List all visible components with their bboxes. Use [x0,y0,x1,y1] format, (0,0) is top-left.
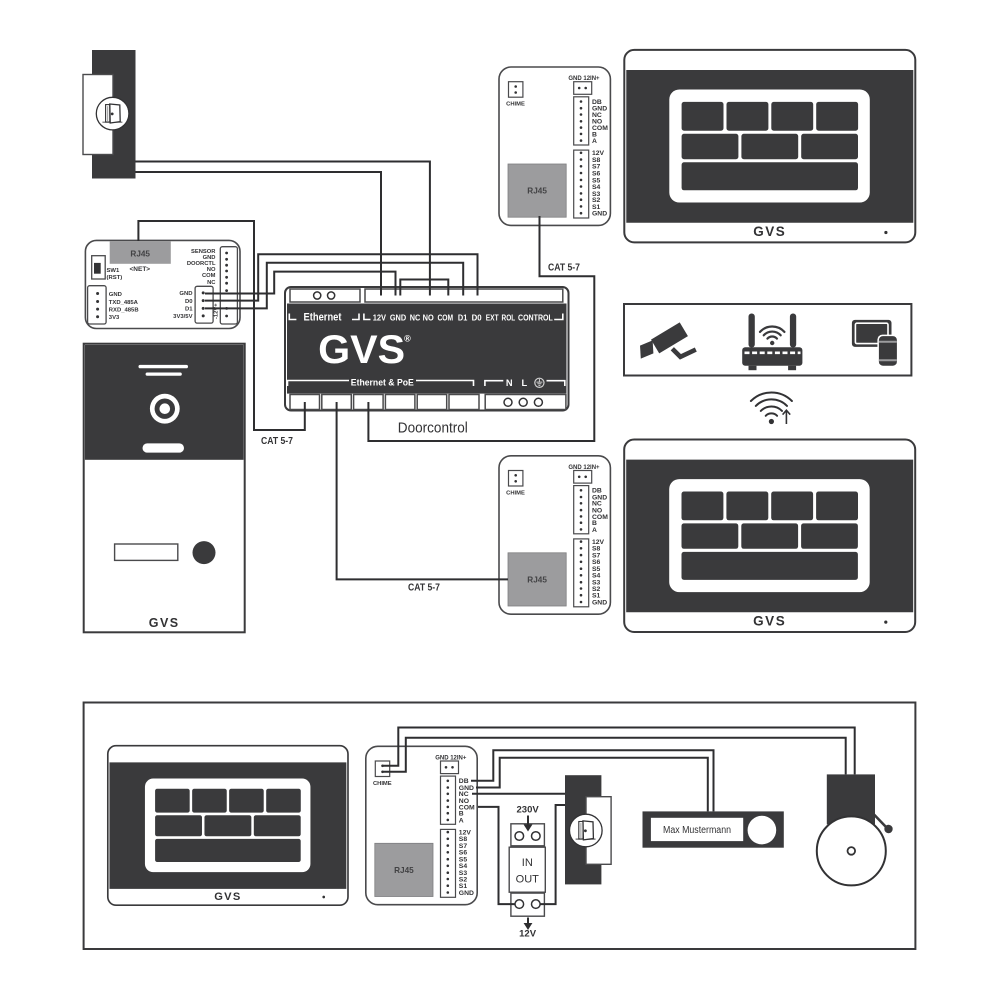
svg-text:3V3: 3V3 [109,315,120,321]
svg-text:230V: 230V [517,805,540,816]
svg-text:COM: COM [202,273,216,279]
svg-text:-12V+: -12V+ [214,303,220,319]
svg-text:N: N [506,378,513,388]
svg-text:®: ® [404,334,411,344]
svg-text:RJ45: RJ45 [130,250,150,259]
svg-text:D0: D0 [185,299,193,305]
svg-text:NC: NC [207,280,216,286]
svg-text:ROL: ROL [502,313,516,322]
svg-text:D1: D1 [185,307,193,313]
svg-text:GND: GND [109,292,122,298]
svg-text:GND: GND [390,313,406,322]
svg-text:<NET>: <NET> [130,266,151,273]
svg-text:RXD_485B: RXD_485B [109,307,139,313]
svg-text:(RST): (RST) [107,275,123,281]
svg-text:TXD_485A: TXD_485A [109,300,139,306]
svg-text:CAT 5-7: CAT 5-7 [261,435,293,447]
svg-text:CONTROL: CONTROL [518,313,553,322]
svg-text:COM: COM [437,313,453,322]
svg-text:GVS: GVS [318,328,405,372]
svg-text:IN: IN [522,857,533,869]
svg-text:NO: NO [423,313,435,322]
svg-text:12V: 12V [519,929,537,940]
svg-text:GVS: GVS [149,616,180,630]
svg-text:SENSOR: SENSOR [191,249,216,255]
svg-text:NC: NC [410,313,421,322]
svg-text:D1: D1 [458,313,468,322]
svg-text:D0: D0 [472,313,482,322]
svg-text:OUT: OUT [516,874,540,886]
svg-text:L: L [522,378,528,388]
svg-text:Doorcontrol: Doorcontrol [398,420,468,437]
svg-text:CAT 5-7: CAT 5-7 [548,262,580,274]
svg-text:3V3/5V: 3V3/5V [173,314,192,320]
svg-text:Ethernet: Ethernet [304,312,342,324]
svg-text:CAT 5-7: CAT 5-7 [408,582,440,594]
svg-text:GND: GND [179,291,192,297]
svg-text:GND: GND [203,255,216,261]
svg-text:EXT: EXT [486,313,499,322]
svg-text:Ethernet & PoE: Ethernet & PoE [351,377,414,388]
svg-text:SW1: SW1 [107,268,120,274]
svg-text:Max Mustermann: Max Mustermann [663,825,731,836]
svg-text:12V: 12V [373,313,387,322]
